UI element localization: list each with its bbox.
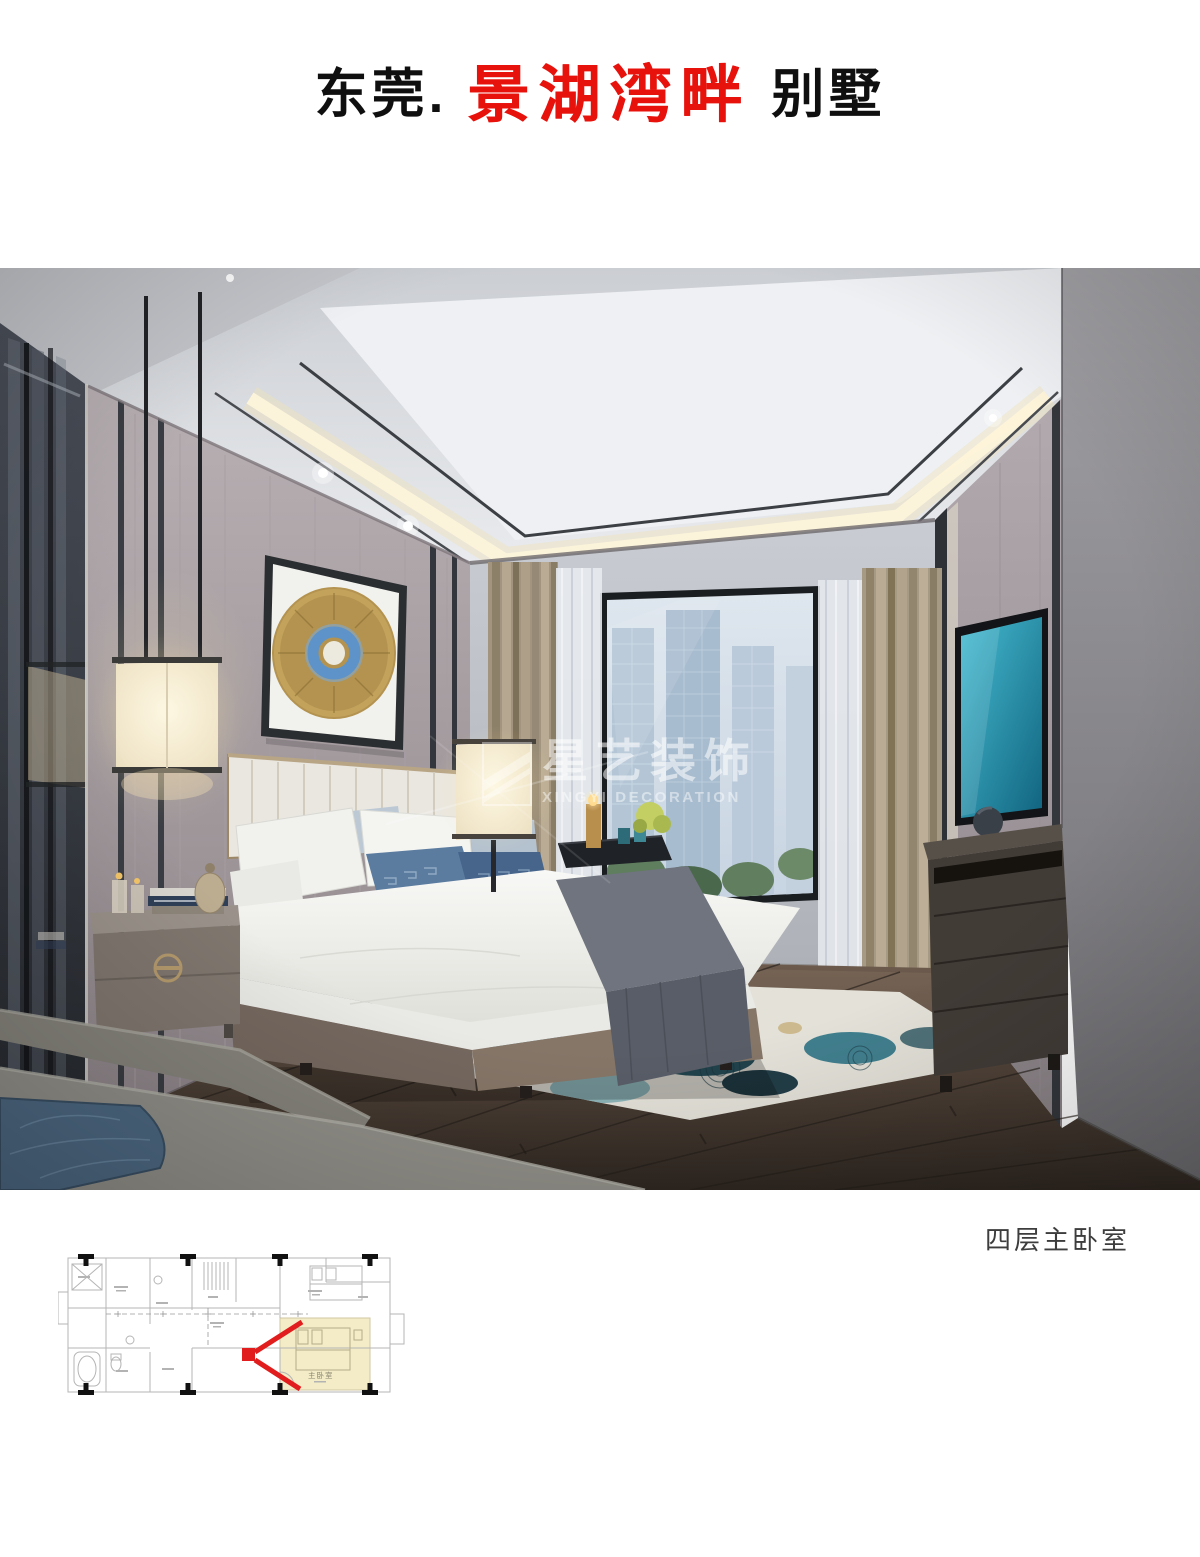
vignette <box>0 268 1200 1190</box>
plan-camera-marker <box>242 1348 255 1361</box>
title-project-name: 景湖湾畔 <box>467 61 751 130</box>
plan-room-area-mark <box>314 1381 326 1383</box>
title-suffix: 别墅 <box>771 65 885 124</box>
plan-room-label: 主卧室 <box>308 1370 334 1380</box>
floor-plan-thumbnail: 主卧室 <box>58 1252 410 1404</box>
title-city: 东莞. <box>315 65 448 124</box>
bedroom-rendering: 星艺装饰 XINGYI DECORATION <box>0 268 1200 1190</box>
photo-caption: 四层主卧室 <box>985 1220 1130 1257</box>
page-title: 东莞.景湖湾畔别墅 <box>0 44 1200 134</box>
presentation-page: 东莞.景湖湾畔别墅 <box>0 0 1200 1557</box>
